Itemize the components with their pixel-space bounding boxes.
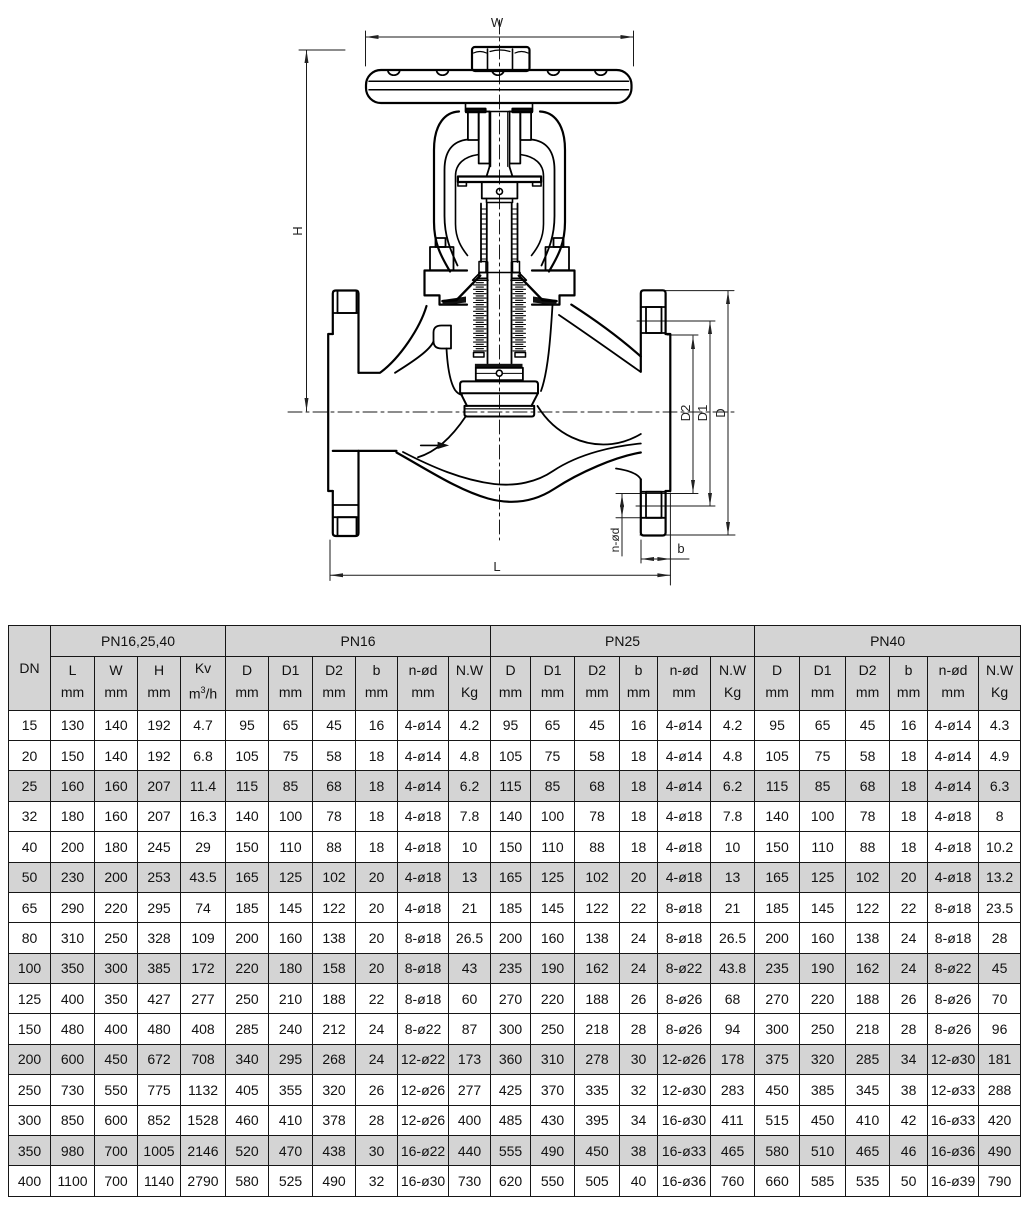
svg-text:W: W	[491, 15, 504, 30]
svg-text:D2: D2	[678, 405, 693, 422]
svg-text:D1: D1	[695, 405, 710, 422]
svg-text:D: D	[713, 408, 728, 417]
svg-text:L: L	[493, 559, 500, 574]
svg-text:b: b	[677, 541, 684, 556]
svg-text:n-ød: n-ød	[608, 528, 622, 553]
svg-text:H: H	[290, 226, 305, 235]
